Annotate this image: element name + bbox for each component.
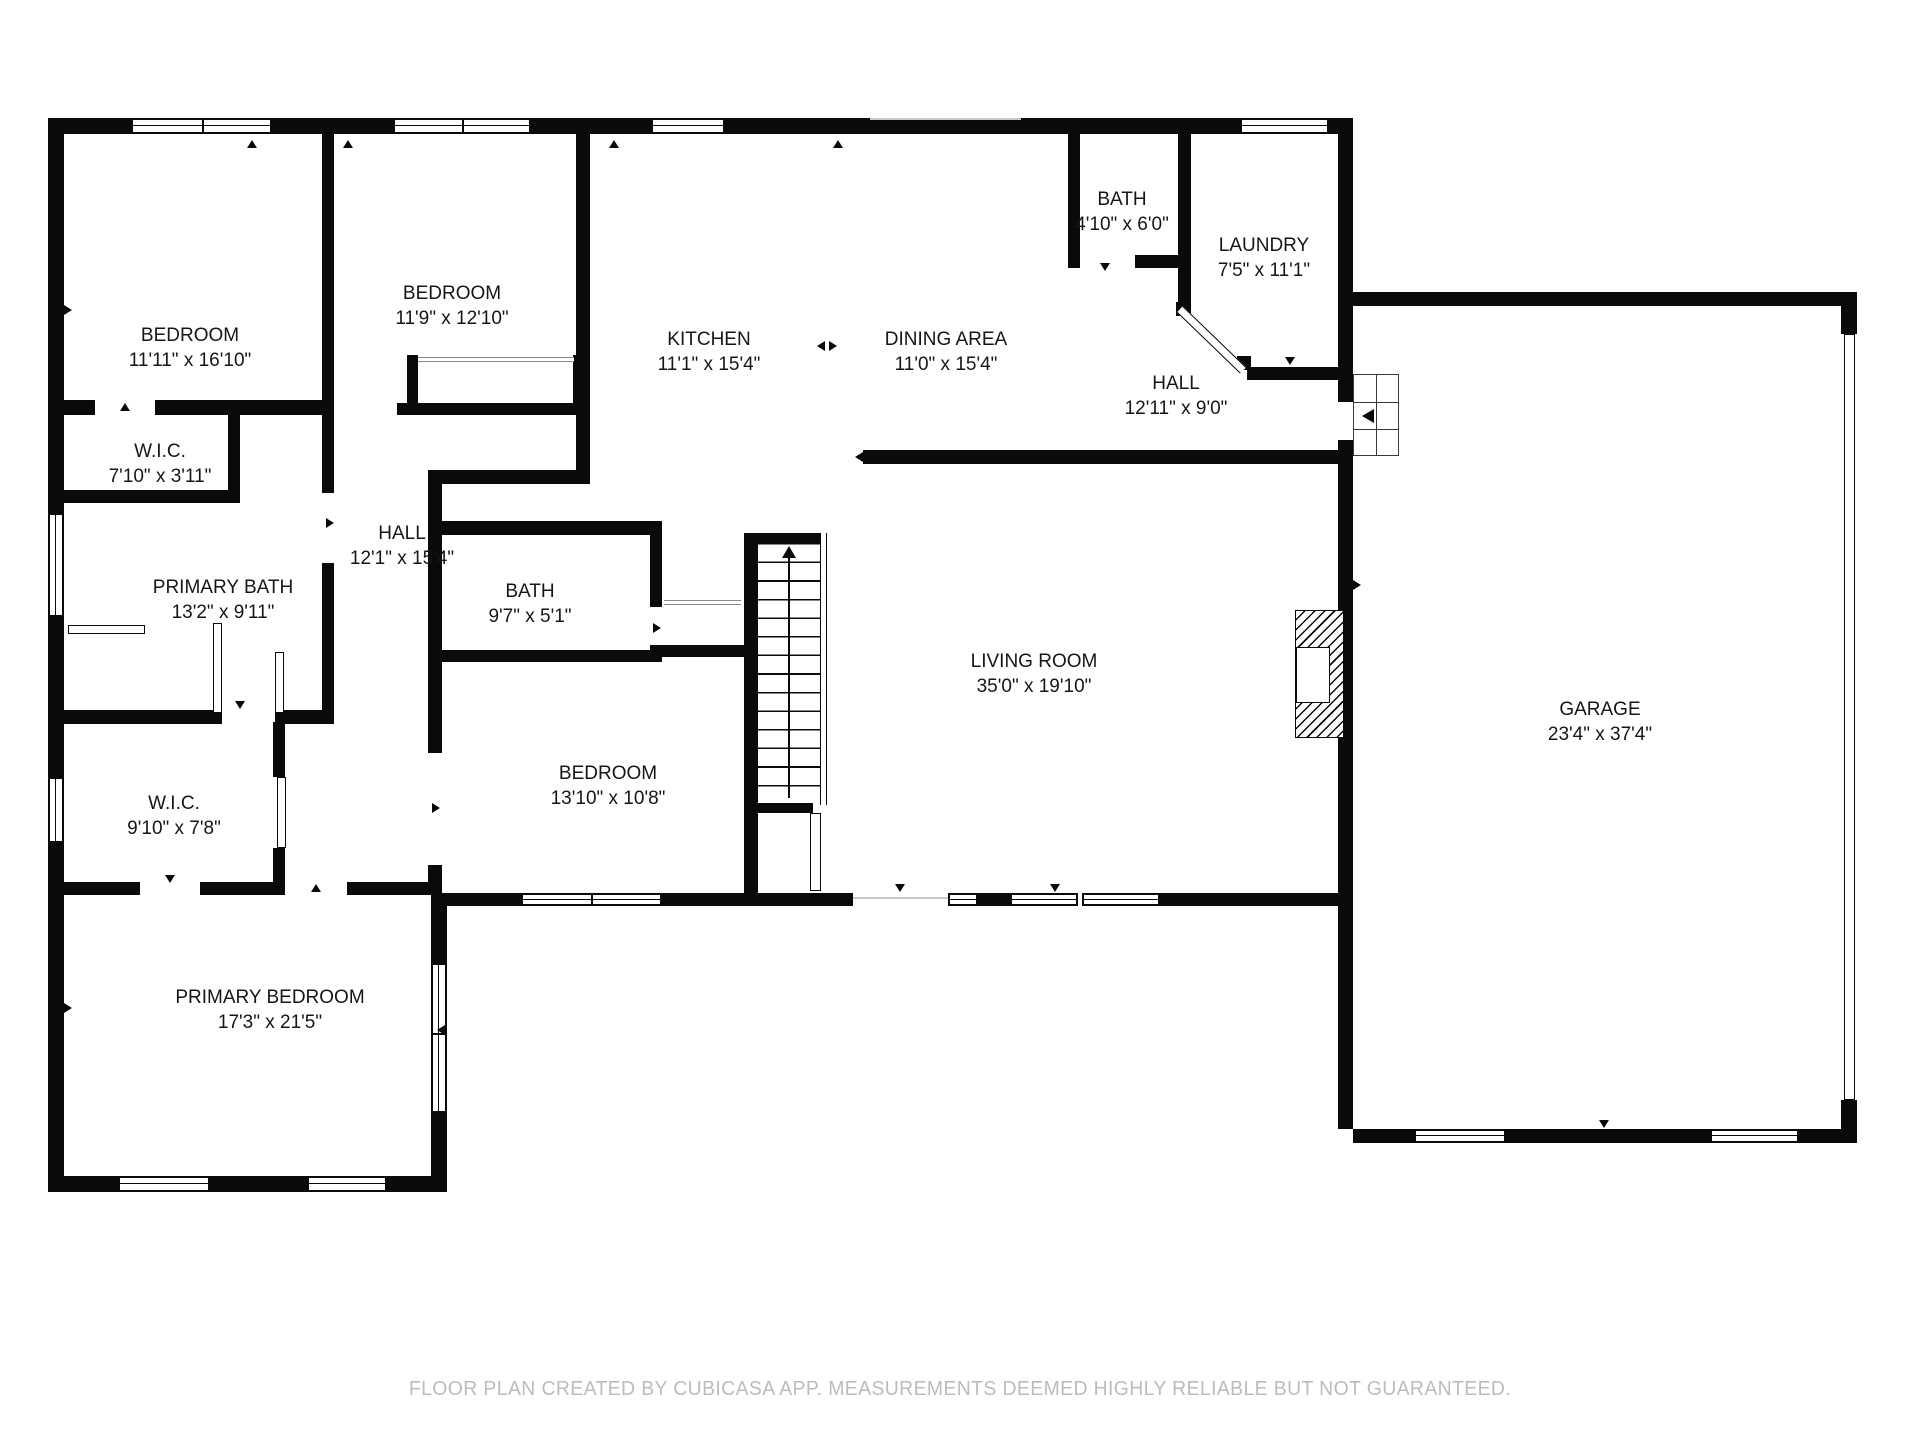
door-marker xyxy=(555,651,565,659)
room-dims: 17'3" x 21'5" xyxy=(175,1010,364,1035)
wall xyxy=(1178,134,1191,313)
window xyxy=(651,118,725,134)
room-label-wic-small: W.I.C.7'10" x 3'11" xyxy=(109,439,212,489)
room-name: PRIMARY BATH xyxy=(153,575,293,600)
door-marker xyxy=(855,452,863,462)
stair-railing xyxy=(820,533,827,805)
room-name: W.I.C. xyxy=(127,791,221,816)
room-label-bath-middle: BATH9'7" x 5'1" xyxy=(488,579,571,629)
opening-line xyxy=(870,118,1021,120)
door-marker xyxy=(64,1003,72,1013)
wall xyxy=(431,893,521,906)
door-marker xyxy=(326,518,334,528)
door-marker xyxy=(343,140,353,148)
window xyxy=(48,513,64,617)
wall xyxy=(650,645,745,657)
room-name: HALL xyxy=(350,521,454,546)
wall xyxy=(397,403,590,415)
wall xyxy=(1160,893,1353,906)
room-dims: 12'1" x 15'4" xyxy=(350,546,454,571)
entry-arrow-icon xyxy=(1362,409,1374,423)
window xyxy=(131,118,272,134)
window xyxy=(393,118,531,134)
window xyxy=(948,893,978,906)
window xyxy=(118,1176,210,1192)
room-label-bedroom-1: BEDROOM11'11" x 16'10" xyxy=(129,323,252,373)
room-dims: 4'10" x 6'0" xyxy=(1075,212,1169,237)
wall xyxy=(428,470,590,484)
door-marker xyxy=(609,140,619,148)
door-marker xyxy=(120,403,130,411)
fireplace-firebox xyxy=(1296,647,1330,703)
footer-disclaimer: FLOOR PLAN CREATED BY CUBICASA APP. MEAS… xyxy=(409,1378,1511,1401)
bath-partition xyxy=(275,652,284,713)
room-dims: 11'0" x 15'4" xyxy=(885,352,1007,377)
room-label-garage: GARAGE23'4" x 37'4" xyxy=(1548,697,1652,747)
room-name: W.I.C. xyxy=(109,439,212,464)
wall xyxy=(1135,255,1191,268)
room-name: BATH xyxy=(1075,187,1169,212)
room-dims: 11'11" x 16'10" xyxy=(129,348,252,373)
closet-slider xyxy=(418,357,574,362)
door-marker xyxy=(653,623,661,633)
wall xyxy=(155,400,334,415)
room-name: BATH xyxy=(488,579,571,604)
room-label-primary-bath: PRIMARY BATH13'2" x 9'11" xyxy=(153,575,293,625)
wall xyxy=(440,650,662,662)
room-dims: 7'5" x 11'1" xyxy=(1218,258,1310,283)
wall xyxy=(273,722,285,777)
door-marker xyxy=(1285,357,1295,365)
window xyxy=(48,777,64,843)
wall xyxy=(322,134,334,493)
wall xyxy=(576,134,590,484)
wall xyxy=(407,355,418,415)
wall xyxy=(1841,292,1857,334)
door-marker xyxy=(311,884,321,892)
door-marker xyxy=(580,461,590,469)
wall xyxy=(744,533,758,893)
opening-line xyxy=(853,897,948,899)
window xyxy=(431,963,447,1113)
wall xyxy=(48,1176,447,1192)
wall xyxy=(744,533,824,543)
door-marker xyxy=(437,1025,445,1035)
room-label-primary-bedroom: PRIMARY BEDROOM17'3" x 21'5" xyxy=(175,985,364,1035)
wall xyxy=(48,118,64,1192)
door-marker xyxy=(64,305,72,315)
room-name: HALL xyxy=(1125,371,1228,396)
window xyxy=(307,1176,387,1192)
garage-door xyxy=(1844,334,1855,1100)
wall xyxy=(200,882,285,895)
room-dims: 23'4" x 37'4" xyxy=(1548,722,1652,747)
wall xyxy=(650,535,662,607)
door-marker xyxy=(895,884,905,892)
room-dims: 9'7" x 5'1" xyxy=(488,604,571,629)
window xyxy=(1240,118,1329,134)
window xyxy=(1710,1129,1799,1143)
closet-slider xyxy=(664,600,741,605)
wall xyxy=(48,882,140,895)
door-leaf xyxy=(277,777,286,848)
door-marker xyxy=(1599,1120,1609,1128)
wall xyxy=(228,415,240,495)
wall xyxy=(347,882,431,895)
door-marker xyxy=(1353,580,1361,590)
room-divider-marker xyxy=(817,341,825,351)
window xyxy=(1010,893,1078,906)
room-dims: 13'10" x 10'8" xyxy=(551,786,666,811)
door-leaf xyxy=(810,813,821,891)
wall xyxy=(48,490,240,503)
wall xyxy=(322,563,334,722)
entry-steps-divider xyxy=(1376,375,1377,455)
wall xyxy=(1068,255,1078,268)
room-label-wic-primary: W.I.C.9'10" x 7'8" xyxy=(127,791,221,841)
room-name: KITCHEN xyxy=(658,327,761,352)
wall xyxy=(48,710,222,724)
room-name: DINING AREA xyxy=(885,327,1007,352)
wall xyxy=(662,893,853,906)
room-label-hall-bedrooms: HALL12'1" x 15'4" xyxy=(350,521,454,571)
wall xyxy=(1338,380,1353,402)
wall xyxy=(863,450,1353,464)
room-label-dining-area: DINING AREA11'0" x 15'4" xyxy=(885,327,1007,377)
room-dims: 7'10" x 3'11" xyxy=(109,464,212,489)
bath-vanity xyxy=(68,625,145,634)
room-name: LIVING ROOM xyxy=(971,649,1098,674)
floor-plan: BEDROOM11'11" x 16'10" BEDROOM11'9" x 12… xyxy=(0,0,1920,1440)
room-dims: 35'0" x 19'10" xyxy=(971,674,1098,699)
bath-partition xyxy=(213,623,222,713)
wall xyxy=(48,400,95,415)
door-marker xyxy=(1050,884,1060,892)
window xyxy=(1082,893,1160,906)
room-label-laundry: LAUNDRY7'5" x 11'1" xyxy=(1218,233,1310,283)
door-marker xyxy=(833,140,843,148)
door-marker xyxy=(432,803,440,813)
wall xyxy=(1247,367,1353,380)
window xyxy=(521,893,662,906)
room-divider-marker xyxy=(829,341,837,351)
door-marker xyxy=(165,875,175,883)
door-marker xyxy=(247,140,257,148)
room-name: BEDROOM xyxy=(551,761,666,786)
room-name: BEDROOM xyxy=(395,281,508,306)
room-name: LAUNDRY xyxy=(1218,233,1310,258)
room-dims: 12'11" x 9'0" xyxy=(1125,396,1228,421)
room-dims: 9'10" x 7'8" xyxy=(127,816,221,841)
wall xyxy=(442,521,662,535)
wall xyxy=(573,355,590,415)
entry-steps-tread xyxy=(1354,402,1398,403)
wall xyxy=(1338,464,1353,1129)
door-marker xyxy=(235,701,245,709)
room-label-bedroom-2: BEDROOM11'9" x 12'10" xyxy=(395,281,508,331)
room-dims: 11'1" x 15'4" xyxy=(658,352,761,377)
room-dims: 11'9" x 12'10" xyxy=(395,306,508,331)
entry-steps xyxy=(1353,374,1399,456)
door-marker xyxy=(1025,452,1035,460)
wall xyxy=(428,470,442,753)
room-dims: 13'2" x 9'11" xyxy=(153,600,293,625)
wall xyxy=(978,893,1010,906)
room-name: PRIMARY BEDROOM xyxy=(175,985,364,1010)
wall xyxy=(428,865,442,893)
window xyxy=(1414,1129,1506,1143)
room-label-kitchen: KITCHEN11'1" x 15'4" xyxy=(658,327,761,377)
room-label-bedroom-3: BEDROOM13'10" x 10'8" xyxy=(551,761,666,811)
stair-direction-arrow xyxy=(788,556,790,798)
stair-arrow-head-icon xyxy=(782,546,796,558)
room-label-living-room: LIVING ROOM35'0" x 19'10" xyxy=(971,649,1098,699)
room-label-bath-upper: BATH4'10" x 6'0" xyxy=(1075,187,1169,237)
room-label-hall-entry: HALL12'11" x 9'0" xyxy=(1125,371,1228,421)
room-name: GARAGE xyxy=(1548,697,1652,722)
entry-steps-tread xyxy=(1354,429,1398,430)
door-marker xyxy=(475,473,485,481)
door-marker xyxy=(1100,263,1110,271)
room-name: BEDROOM xyxy=(129,323,252,348)
wall xyxy=(1338,118,1353,380)
wall xyxy=(745,803,813,813)
angled-wall xyxy=(1177,306,1247,374)
door-marker xyxy=(1595,296,1605,304)
